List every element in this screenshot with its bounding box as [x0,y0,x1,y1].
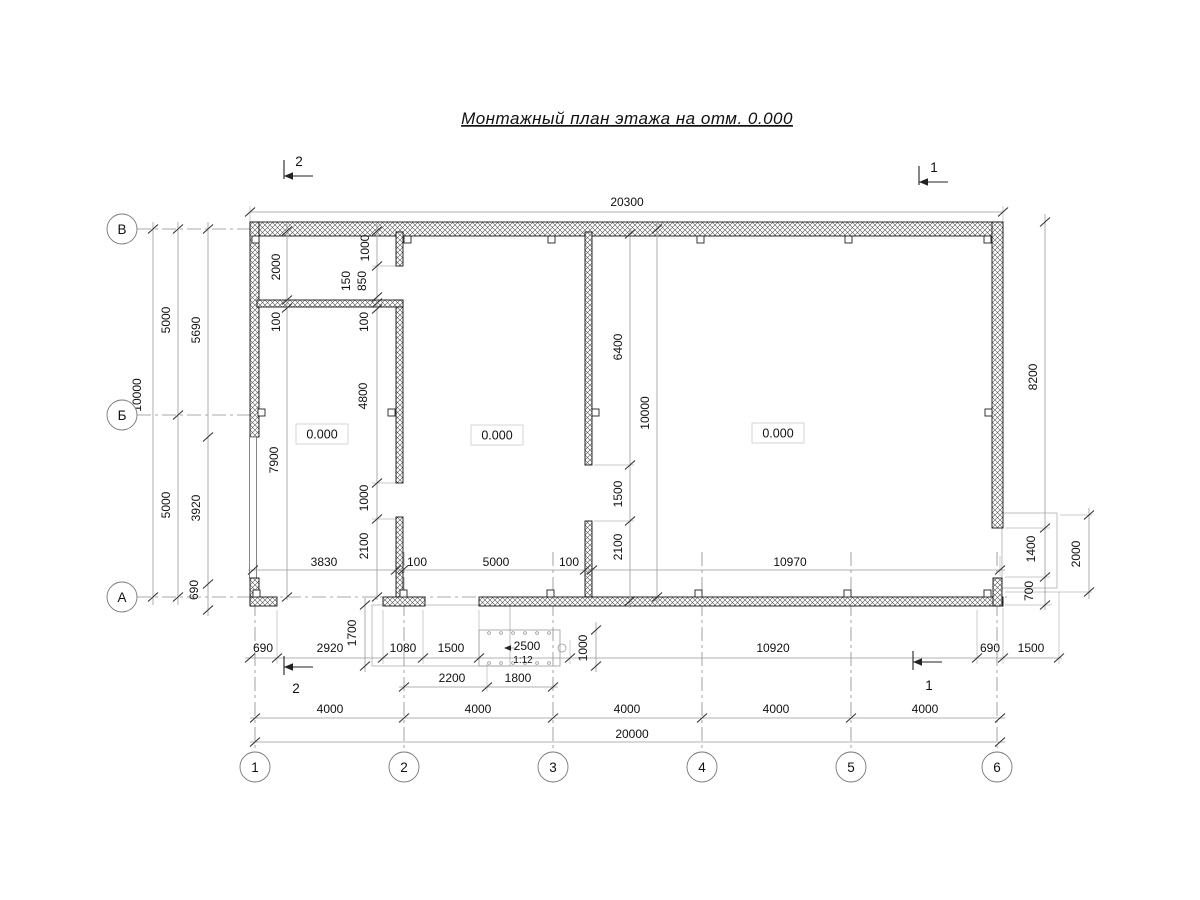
dim-room1-7900: 7900 [267,446,281,473]
dim-p1-2100: 2100 [357,532,371,559]
section-label-1-top: 1 [930,160,938,175]
dim-p1-100: 100 [357,312,371,332]
level-marker-middle: 0.000 [471,425,523,445]
axis-label-4: 4 [698,760,706,775]
section-label-2-bottom: 2 [292,681,300,696]
dim-grid-4-5: 4000 [763,702,790,716]
partition-1-stub [396,232,403,266]
dim-overall-top: 20300 [610,195,644,209]
dim-bottom-2920: 2920 [317,641,344,655]
dim-bottom-1080: 1080 [390,641,417,655]
level-marker-left: 0.000 [296,424,348,444]
level-value-left: 0.000 [306,428,337,442]
dim-ramp-width: 1000 [576,634,590,661]
axis-bubble-col-5: 5 [836,752,866,782]
axis-label-3: 3 [549,760,557,775]
partition-1-low [396,517,403,597]
dim-p2-6400: 6400 [611,333,625,360]
dim-entry-2200: 2200 [439,671,466,685]
dim-p2-2100: 2100 [611,533,625,560]
axis-bubble-col-1: 1 [240,752,270,782]
wall-left-footing-h [250,597,277,606]
wall-bottom-piece [383,597,425,606]
dim-p1-150: 150 [339,271,353,291]
level-value-right: 0.000 [762,427,793,441]
axis-bubble-row-b: Б [107,400,137,430]
dim-right-700: 700 [1022,581,1036,601]
dim-room1-100: 100 [269,312,283,332]
partition-2-upper [585,232,592,465]
level-marker-right: 0.000 [752,423,804,443]
dim-right-2000: 2000 [1069,540,1083,567]
dim-bottom-right-1500: 1500 [1018,641,1045,655]
dim-grid-2-3: 4000 [465,702,492,716]
level-value-middle: 0.000 [481,429,512,443]
dim-p1-1000b: 1000 [357,484,371,511]
dim-overall-bottom: 20000 [615,727,649,741]
dim-bottom-10920: 10920 [756,641,790,655]
dim-bottom-1500: 1500 [438,641,465,655]
wall-top [250,222,1003,236]
dim-p1-1000a: 1000 [358,234,372,261]
axis-label-a: А [117,590,126,605]
axis-bubble-col-4: 4 [687,752,717,782]
partition-1-mid [396,300,403,483]
section-label-2-top: 2 [295,154,303,169]
wall-left-upper [250,222,259,437]
floor-plan-canvas: Монтажный план этажа на отм. 0.000 [0,0,1200,900]
dim-left-span-top: 5000 [159,306,173,333]
axis-bubble-row-v: В [107,214,137,244]
dim-left-span-bottom: 5000 [159,491,173,518]
dim-left-690: 690 [187,580,201,600]
dim-entry-1800: 1800 [505,671,532,685]
dim-left-5690: 5690 [189,316,203,343]
dim-bottom-690: 690 [253,641,273,655]
wall-right-upturn [993,578,1002,606]
dim-room1-2000: 2000 [269,253,283,280]
dim-width-p2: 100 [559,555,579,569]
axis-label-b: Б [118,408,127,423]
axis-label-v: В [117,222,126,237]
axis-label-5: 5 [847,760,855,775]
drawing-title: Монтажный план этажа на отм. 0.000 [461,109,793,128]
wall-bottom-main [479,597,1003,606]
dim-grid-5-6: 4000 [912,702,939,716]
dim-width-room3: 10970 [773,555,807,569]
dim-width-p1: 100 [407,555,427,569]
dim-ramp-length: 2500 [514,639,541,653]
dim-porch-1700: 1700 [345,619,359,646]
drawing-sheet: Монтажный план этажа на отм. 0.000 [0,0,1200,900]
axis-bubble-col-6: 6 [982,752,1012,782]
dim-left-3920: 3920 [189,494,203,521]
dim-width-room1: 3830 [311,555,338,569]
section-label-1-bottom: 1 [925,678,933,693]
dim-p1-4800: 4800 [356,382,370,409]
dim-grid-1-2: 4000 [317,702,344,716]
axis-label-6: 6 [993,760,1001,775]
dim-right-1400: 1400 [1024,535,1038,562]
axis-label-2: 2 [400,760,408,775]
dim-right-8200: 8200 [1026,363,1040,390]
window-left [250,437,257,578]
dim-p2-1500: 1500 [611,480,625,507]
dim-grid-3-4: 4000 [614,702,641,716]
axis-bubble-row-a: А [107,582,137,612]
axis-bubble-col-2: 2 [389,752,419,782]
paper-background [0,0,1200,900]
dim-mid-total: 10000 [638,396,652,430]
dim-bottom-right-690: 690 [980,641,1000,655]
axis-bubble-col-3: 3 [538,752,568,782]
wall-right [992,222,1003,528]
partition-2-lower [585,521,592,597]
ramp-slope-label: 1:12 [513,655,533,666]
axis-label-1: 1 [251,760,259,775]
dim-width-room2: 5000 [483,555,510,569]
dim-p1-850: 850 [355,271,369,291]
